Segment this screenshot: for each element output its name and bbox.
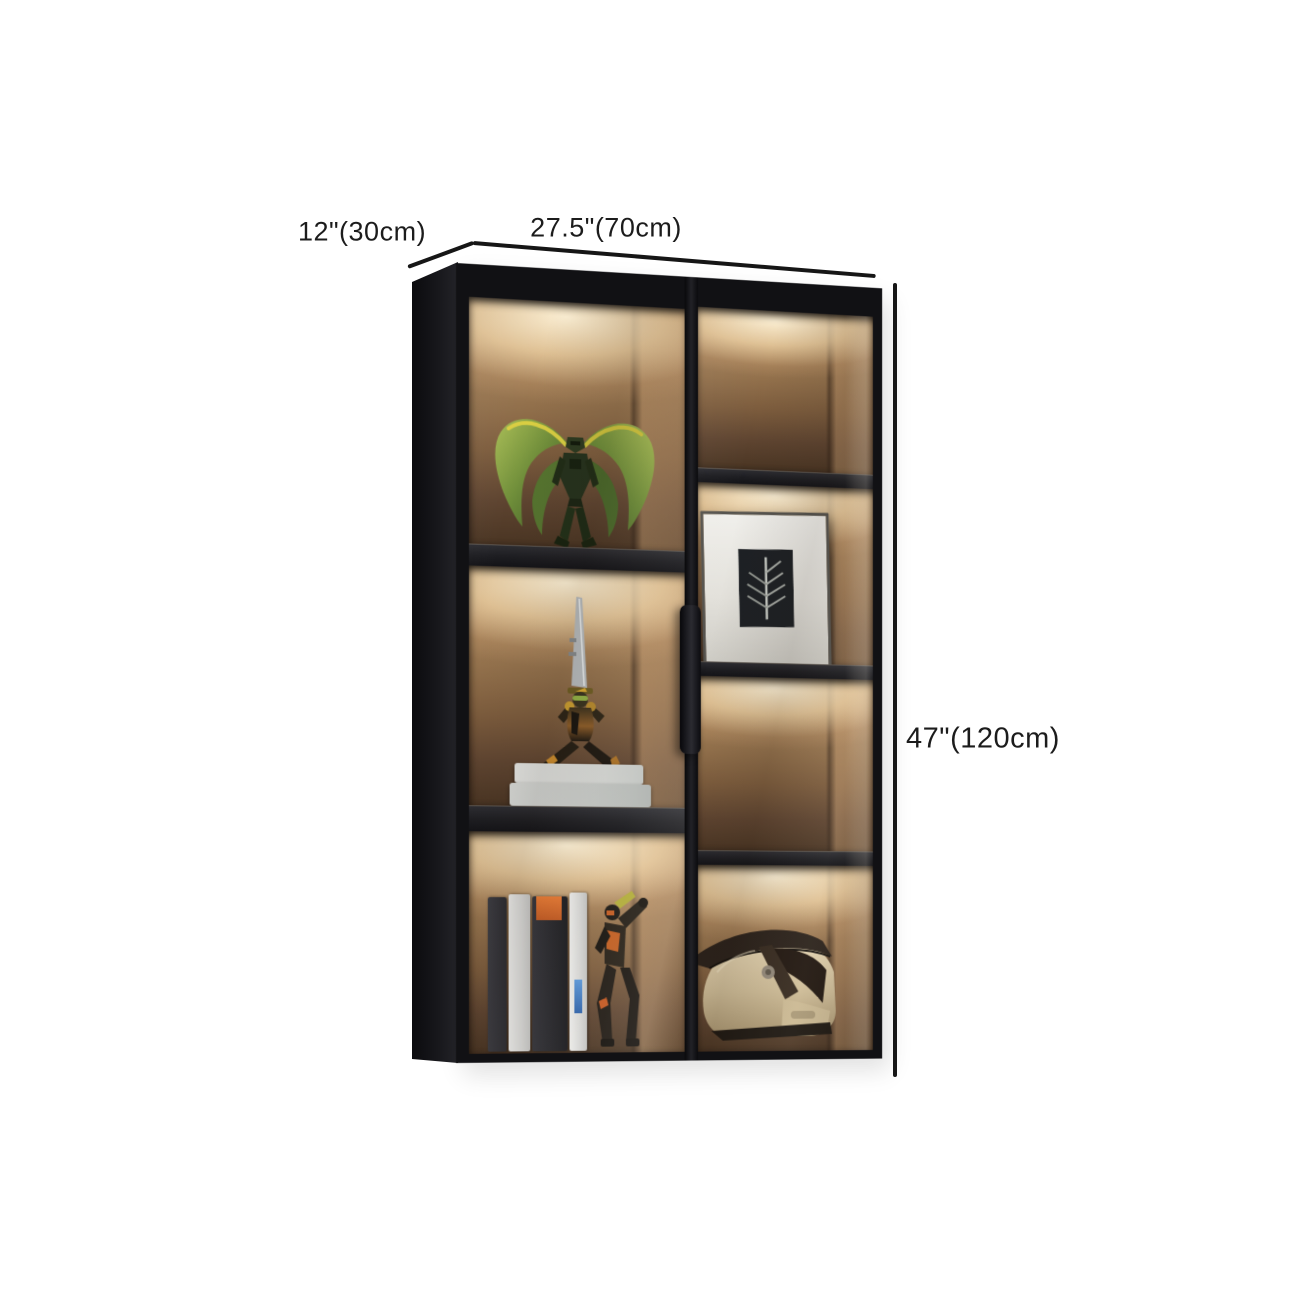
pedestal-book-top xyxy=(515,763,644,785)
leaf-artwork xyxy=(738,549,794,627)
left-shelf-2 xyxy=(469,805,688,833)
height-dimension-line xyxy=(893,283,897,1077)
compartment-right-2 xyxy=(696,482,873,666)
left-glass-door xyxy=(456,263,690,1063)
depth-dimension-label: 12"(30cm) xyxy=(298,217,426,248)
book-spine-white xyxy=(509,894,531,1051)
compartment-right-1 xyxy=(696,307,873,475)
sword-figurine xyxy=(507,593,653,774)
compartment-left-top xyxy=(469,297,688,551)
product-dimension-image: 12"(30cm) 27.5"(70cm) 47"(120cm) xyxy=(0,0,1300,1300)
action-figure xyxy=(587,877,653,1051)
book-blue-sticker xyxy=(574,980,582,1014)
compartment-right-4 xyxy=(696,865,873,1052)
height-dimension-label: 47"(120cm) xyxy=(906,723,1060,756)
book-spine-dark xyxy=(488,897,507,1052)
right-shelf-3 xyxy=(696,850,873,866)
right-glass-door xyxy=(690,277,882,1061)
right-door-glass xyxy=(696,307,873,1052)
book-spine-dark-orange xyxy=(532,896,567,1051)
book-orange-label xyxy=(536,896,562,920)
door-handle xyxy=(680,605,701,754)
compartment-left-bottom xyxy=(469,831,688,1054)
mecha-figurine xyxy=(487,397,663,553)
book-spine-white-2 xyxy=(570,893,588,1051)
compartment-left-middle xyxy=(469,565,688,807)
cabinet-front xyxy=(456,263,882,1063)
compartment-right-3 xyxy=(696,676,873,852)
picture-frame xyxy=(700,511,831,668)
left-door-glass xyxy=(469,297,688,1054)
pedestal-book-bottom xyxy=(510,783,651,808)
width-dimension-label: 27.5"(70cm) xyxy=(530,213,682,244)
cabinet-side-panel xyxy=(412,262,458,1063)
helmet xyxy=(696,914,854,1045)
